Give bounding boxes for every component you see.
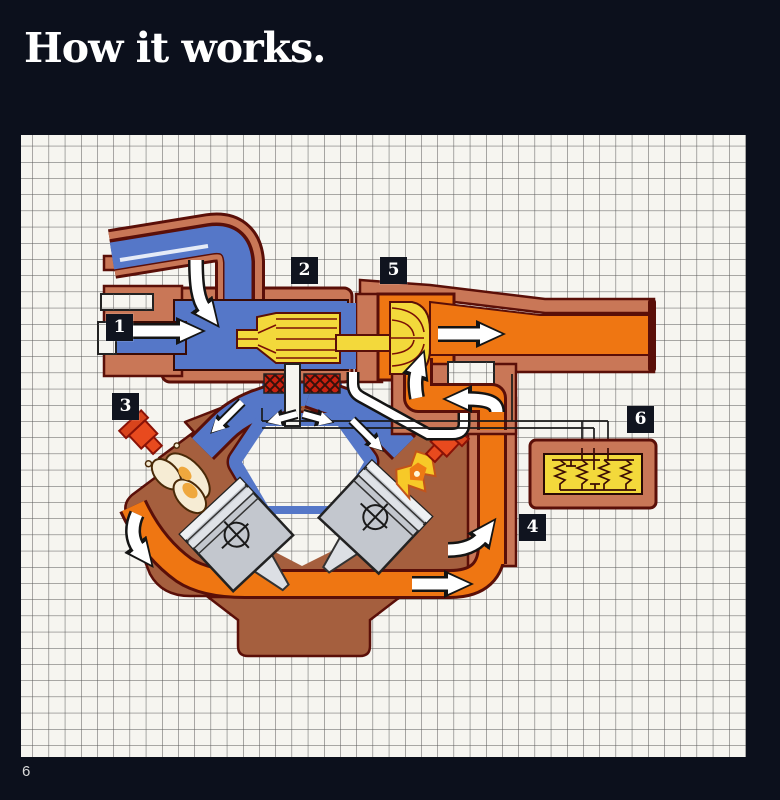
turbo-shaft bbox=[336, 335, 392, 351]
brochure-page: { "page": { "title": "How it works.", "p… bbox=[0, 0, 780, 800]
callout-1: 1 bbox=[106, 314, 133, 341]
flow-arrow-split-left bbox=[279, 414, 297, 419]
callout-3: 3 bbox=[112, 393, 139, 420]
flow-arrow-snorkel-down bbox=[196, 260, 205, 309]
flow-arrow-split-right bbox=[303, 414, 321, 419]
flow-arrow-exhaust-left bbox=[133, 514, 139, 549]
wastegate-actuator bbox=[448, 362, 494, 386]
flow-arrow-turbine-inlet bbox=[416, 372, 418, 398]
callout-2: 2 bbox=[291, 257, 318, 284]
callout-6: 6 bbox=[627, 406, 654, 433]
tailpipe-cap bbox=[648, 299, 656, 372]
inlet-slit bbox=[101, 294, 153, 310]
page-title: How it works. bbox=[24, 24, 624, 72]
ecu-box bbox=[530, 440, 656, 508]
oil-pan bbox=[208, 597, 400, 656]
callout-5: 5 bbox=[380, 257, 407, 284]
throttle-plate-right bbox=[304, 374, 340, 393]
callout-4: 4 bbox=[519, 514, 546, 541]
page-number: 6 bbox=[22, 763, 30, 780]
turbine-icon bbox=[390, 302, 430, 374]
